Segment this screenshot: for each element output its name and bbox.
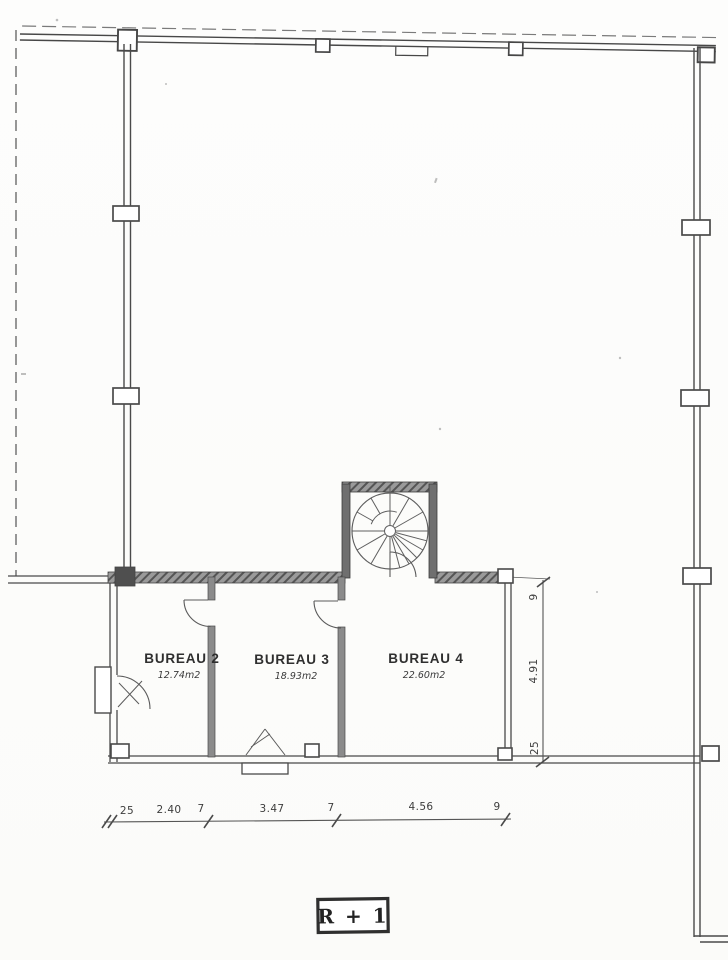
column-marker (316, 39, 330, 52)
column-marker (113, 388, 139, 404)
dimension-label: 3.47 (260, 803, 285, 815)
pilaster (95, 667, 111, 713)
room-label: BUREAU 4 (388, 651, 463, 666)
left-wall-features (95, 667, 150, 713)
dimension-label: 4.91 (528, 659, 540, 684)
column-marker (111, 744, 129, 758)
column-marker (113, 206, 139, 221)
dimension-label: 7 (327, 802, 334, 814)
room-area-label: 22.60m2 (403, 670, 446, 681)
office-outer-walls (8, 576, 700, 763)
room-area-label: 18.93m2 (275, 671, 318, 682)
dimension-line-horizontal: 25 2.40 7 3.47 7 4.56 9 (102, 801, 511, 828)
hall-left-wall (113, 44, 139, 577)
exterior-step (242, 763, 288, 774)
dimension-label: 9 (528, 593, 540, 600)
office-top-wall (108, 567, 550, 586)
column-marker (683, 568, 711, 584)
door-swing (184, 600, 211, 627)
dimension-label: 7 (197, 803, 204, 815)
column-marker (115, 567, 135, 586)
building-right-wall (681, 48, 728, 942)
door-swing (117, 676, 150, 709)
dimension-label: 25 (529, 741, 541, 755)
office-partitions (208, 577, 345, 757)
floor-plan-drawing: 25 2.40 7 3.47 7 4.56 9 9 4.91 25 BUREAU… (0, 0, 728, 960)
room-labels: BUREAU 2 12.74m2 BUREAU 3 18.93m2 BUREAU… (144, 651, 463, 682)
door-leaf (246, 729, 265, 755)
room-label: BUREAU 2 (144, 651, 219, 666)
column-marker (509, 42, 523, 55)
column-marker (682, 220, 710, 235)
door-swing (390, 552, 416, 577)
column-marker (305, 744, 319, 757)
scan-speckles (21, 19, 621, 593)
dimension-label: 9 (493, 801, 500, 813)
room-label: BUREAU 3 (254, 652, 329, 667)
title-box: R + 1 (317, 899, 389, 933)
door-swing (314, 601, 341, 628)
spiral-staircase (352, 486, 428, 569)
room-area-label: 12.74m2 (158, 670, 201, 681)
column-marker (118, 30, 137, 51)
dimension-line-vertical: 9 4.91 25 (528, 577, 550, 767)
dimension-label: 4.56 (409, 801, 434, 813)
dimension-label: 25 (120, 805, 134, 817)
column-marker (498, 569, 513, 583)
column-marker (498, 748, 512, 760)
door-leaf (265, 729, 285, 755)
level-label: R + 1 (317, 904, 389, 929)
column-marker (681, 390, 709, 406)
dimension-label: 2.40 (157, 804, 182, 816)
column-marker (702, 746, 719, 761)
door-swings (184, 552, 416, 628)
scanned-floor-plan-page: 25 2.40 7 3.47 7 4.56 9 9 4.91 25 BUREAU… (0, 0, 728, 960)
